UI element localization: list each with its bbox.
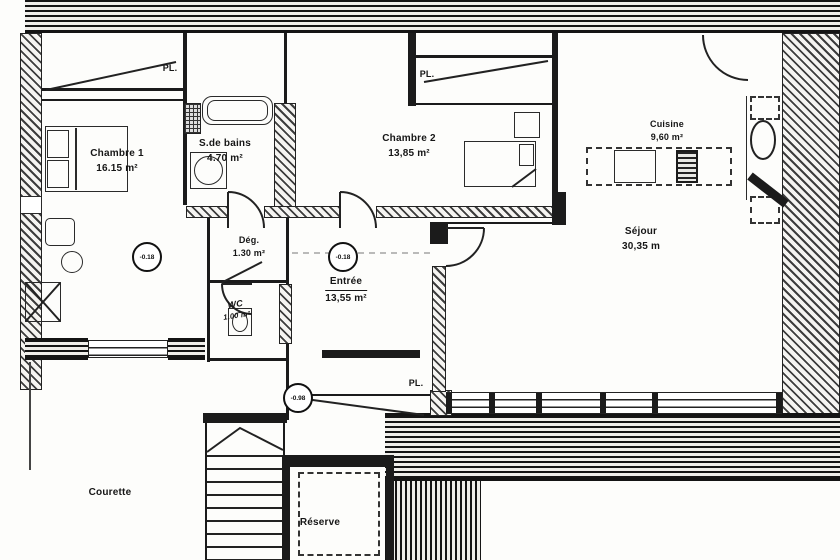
window-jamb-5: [652, 393, 658, 413]
wall-bottom-band: [385, 413, 840, 481]
room-label-entree: Entrée 13,55 m²: [325, 274, 367, 306]
pl2-top-line: [416, 55, 552, 58]
room-area: 13,55 m²: [325, 291, 367, 306]
bed2-pillow: [519, 144, 534, 166]
wall-row-seg3: [376, 206, 556, 218]
bathtub-inner: [207, 100, 268, 121]
wall-right-hatched: [782, 33, 840, 415]
bed1-pillow-bottom: [47, 160, 69, 188]
wall-sejour-top: [446, 222, 556, 224]
room-label-cuisine: Cuisine 9,60 m²: [650, 118, 684, 144]
window-jamb-2: [489, 393, 495, 413]
door-arc-chambre2: [340, 192, 376, 228]
room-label-chambre2: Chambre 2 13,85 m²: [382, 131, 436, 161]
wall-reserve-left: [282, 467, 290, 560]
wall-entree-sejour-jamb: [430, 222, 448, 244]
wall-entree-sejour-hatched: [432, 266, 446, 392]
closet3-label: PL.: [409, 377, 424, 390]
closet2-label: PL.: [420, 68, 435, 81]
window-jamb-1: [446, 393, 452, 413]
room-name: Entrée: [325, 274, 367, 291]
room-label-sdb: S.de bains 4.70 m²: [199, 136, 251, 166]
wall-alcove-left: [746, 96, 748, 200]
closet1-diagonal: [46, 62, 176, 90]
room-area: 13,85 m²: [382, 146, 436, 161]
entrance-door-bar: [322, 350, 420, 358]
wall-wc-right-hatched: [279, 284, 292, 344]
room-name: Chambre 1: [90, 146, 144, 161]
room-area: 9,60 m²: [650, 131, 684, 144]
door-arc-sejour: [446, 228, 484, 266]
room-label-degagement: Dég. 1.30 m²: [233, 234, 265, 260]
level-value: -0.18: [336, 254, 351, 261]
pl2-bottom-line: [416, 103, 552, 105]
room-label-wc: WC 1.00 m²: [221, 296, 251, 323]
wall-wc-bottom: [207, 358, 289, 361]
kitchen-hob: [676, 150, 698, 183]
wall-chambre1-bottom-right: [168, 338, 205, 360]
alcove-appliance-top: [750, 96, 780, 120]
reserve-dashed-outline: [298, 472, 380, 556]
closet1-label: PL.: [163, 62, 178, 75]
level-value: -0.18: [140, 254, 155, 261]
room-area: 30,35 m: [622, 239, 660, 254]
wall-reserve-right: [386, 467, 394, 560]
nightstand1: [45, 218, 75, 246]
window-chambre1: [88, 340, 168, 358]
window-jamb-4: [600, 393, 606, 413]
left-wall-niche: [20, 196, 42, 214]
stairs-steps: [207, 455, 283, 560]
nightstand2: [514, 112, 540, 138]
window-jamb-3: [536, 393, 542, 413]
kitchen-counter: [586, 147, 732, 186]
flue-block: [25, 282, 61, 322]
room-area: 4.70 m²: [199, 151, 251, 166]
wall-chambre1-bottom-left: [25, 338, 88, 360]
wall-deg-wc-divider: [210, 280, 286, 283]
room-name: Chambre 2: [382, 131, 436, 146]
wall-deg-left: [207, 218, 210, 362]
wall-row-seg2: [264, 206, 340, 218]
closet1-front-line: [42, 88, 183, 91]
room-name: Séjour: [622, 224, 660, 239]
room-label-sejour: Séjour 30,35 m: [622, 224, 660, 254]
window-jamb-6: [776, 393, 782, 413]
room-area: 16.15 m²: [90, 161, 144, 176]
wall-top-band: [25, 0, 840, 33]
wall-pl2-left: [408, 33, 416, 106]
closet2-diagonal: [424, 61, 548, 82]
wall-sdb-right-hatched: [274, 103, 296, 215]
room-name: S.de bains: [199, 136, 251, 151]
closet1-inner-line: [42, 99, 183, 101]
room-name: Réserve: [300, 515, 340, 530]
room-name: Cuisine: [650, 118, 684, 131]
stairs-top-landing-wall: [203, 413, 287, 423]
room-name: Dég.: [233, 234, 265, 247]
courette-boundary-line: [29, 362, 31, 470]
closet-text: PL.: [163, 62, 178, 75]
level-marker-entree: -0.18: [328, 242, 358, 272]
stool: [61, 251, 83, 273]
wall-reserve-top: [282, 455, 394, 467]
wall-bottom-band-vertical: [385, 481, 481, 560]
room-label-chambre1: Chambre 1 16.15 m²: [90, 146, 144, 176]
wall-chambre2-cuisine: [552, 33, 558, 205]
closet-text: PL.: [420, 68, 435, 81]
room-label-reserve: Réserve: [300, 515, 340, 530]
room-area: 1.30 m²: [233, 247, 265, 260]
boiler: [751, 121, 775, 159]
bed1-pillow-top: [47, 130, 69, 158]
wall-chambre2-cuisine-foot: [552, 192, 566, 225]
kitchen-sink-unit: [614, 150, 656, 183]
bed1-mattress-line: [75, 128, 77, 190]
room-name: Courette: [89, 485, 132, 500]
alcove-appliance-bottom: [750, 196, 780, 224]
wall-row-seg1: [186, 206, 228, 218]
window-band-sejour: [446, 392, 782, 414]
level-value: -0.98: [291, 395, 306, 402]
door-arc-sdb: [228, 192, 264, 228]
bathroom-duct-block: [184, 103, 201, 134]
closet-text: PL.: [409, 377, 424, 390]
level-marker-lower: -0.98: [283, 383, 313, 413]
floor-plan: Chambre 1 16.15 m² S.de bains 4.70 m² Ch…: [0, 0, 840, 560]
wall-sdb-right-top: [284, 33, 287, 103]
door-arc-cuisine: [703, 35, 748, 80]
level-marker-hall: -0.18: [132, 242, 162, 272]
stairs-break-line: [207, 428, 283, 452]
room-label-courette: Courette: [89, 485, 132, 500]
